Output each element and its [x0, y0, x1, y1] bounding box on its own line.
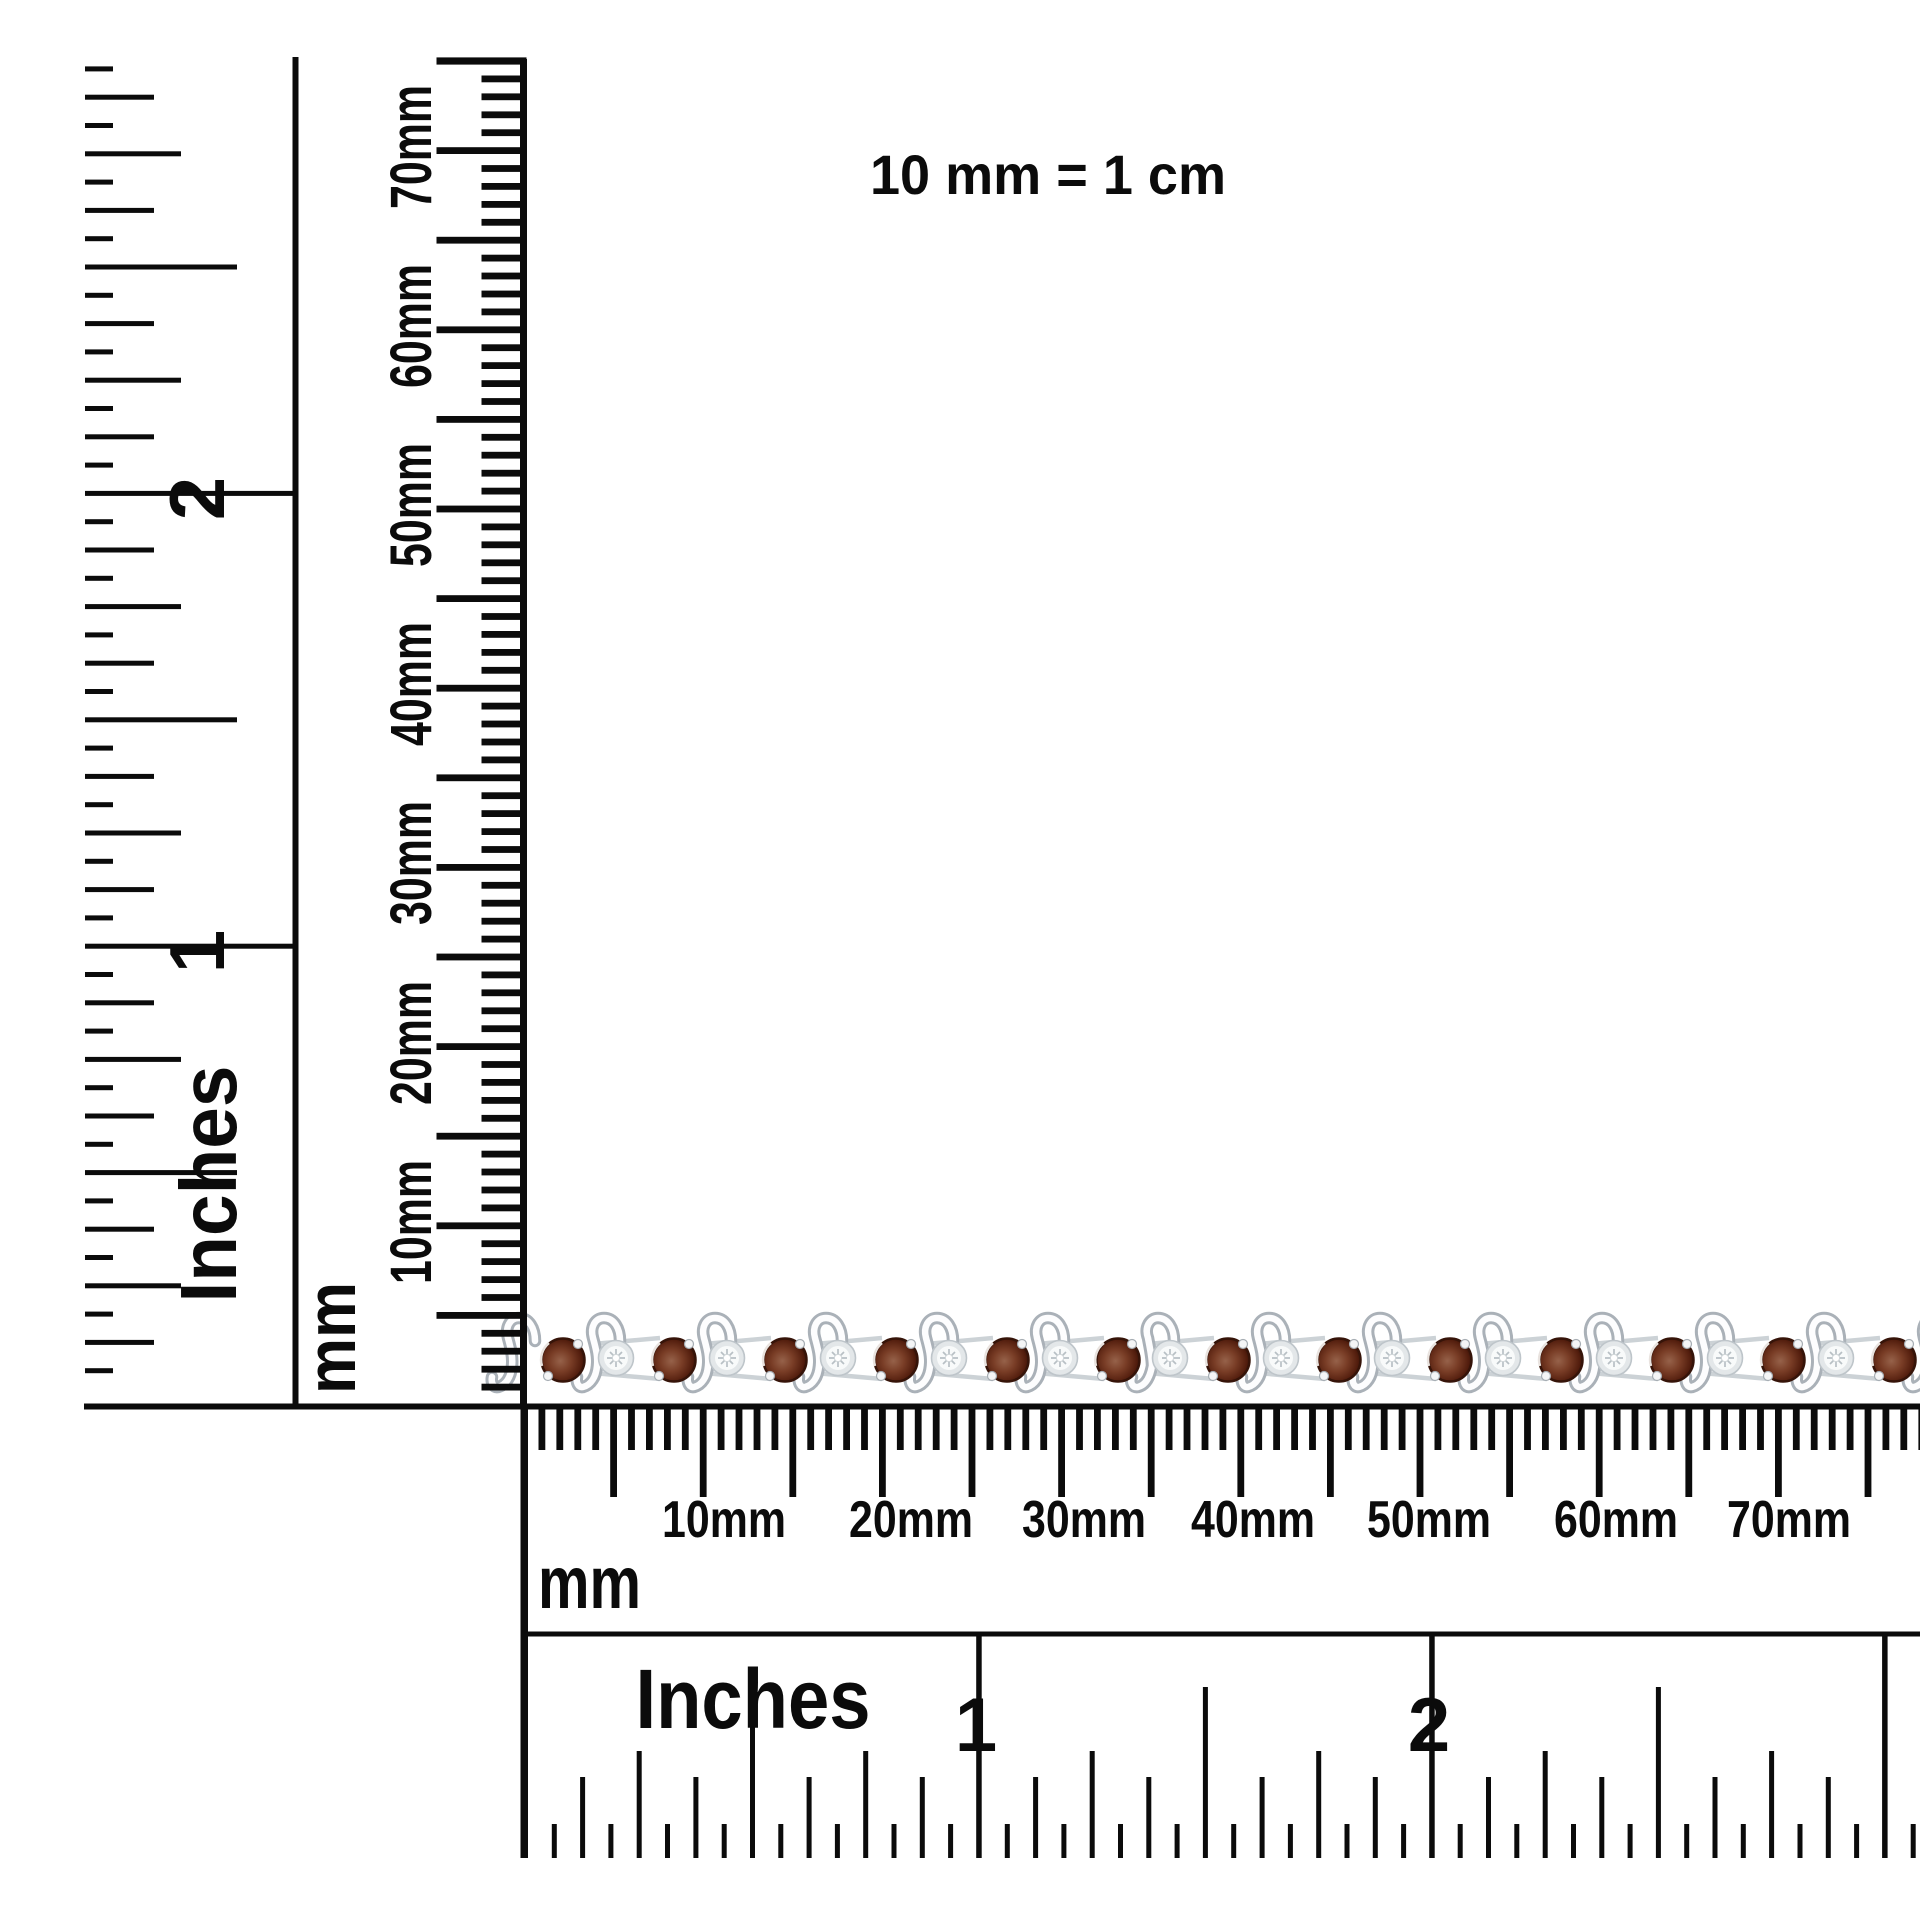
- svg-text:50mm: 50mm: [379, 443, 444, 567]
- svg-text:70mm: 70mm: [1727, 1491, 1851, 1549]
- svg-text:10mm: 10mm: [379, 1160, 444, 1284]
- svg-text:30mm: 30mm: [379, 801, 444, 925]
- svg-text:1: 1: [153, 930, 241, 973]
- svg-text:2: 2: [153, 477, 241, 520]
- svg-text:10mm: 10mm: [662, 1491, 786, 1549]
- svg-text:40mm: 40mm: [1191, 1491, 1315, 1549]
- svg-text:20mm: 20mm: [379, 981, 444, 1105]
- svg-text:Inches: Inches: [636, 1652, 871, 1746]
- svg-text:mm: mm: [292, 1282, 370, 1394]
- svg-text:mm: mm: [538, 1541, 641, 1624]
- svg-text:Inches: Inches: [164, 1066, 253, 1303]
- svg-text:40mm: 40mm: [379, 622, 444, 746]
- svg-text:50mm: 50mm: [1367, 1491, 1491, 1549]
- svg-text:60mm: 60mm: [379, 264, 444, 388]
- svg-text:60mm: 60mm: [1554, 1491, 1678, 1549]
- svg-text:2: 2: [1408, 1683, 1450, 1768]
- svg-text:10 mm = 1 cm: 10 mm = 1 cm: [870, 143, 1226, 206]
- svg-text:70mm: 70mm: [379, 85, 444, 209]
- svg-text:30mm: 30mm: [1022, 1491, 1146, 1549]
- svg-text:1: 1: [955, 1683, 997, 1768]
- svg-text:20mm: 20mm: [849, 1491, 973, 1549]
